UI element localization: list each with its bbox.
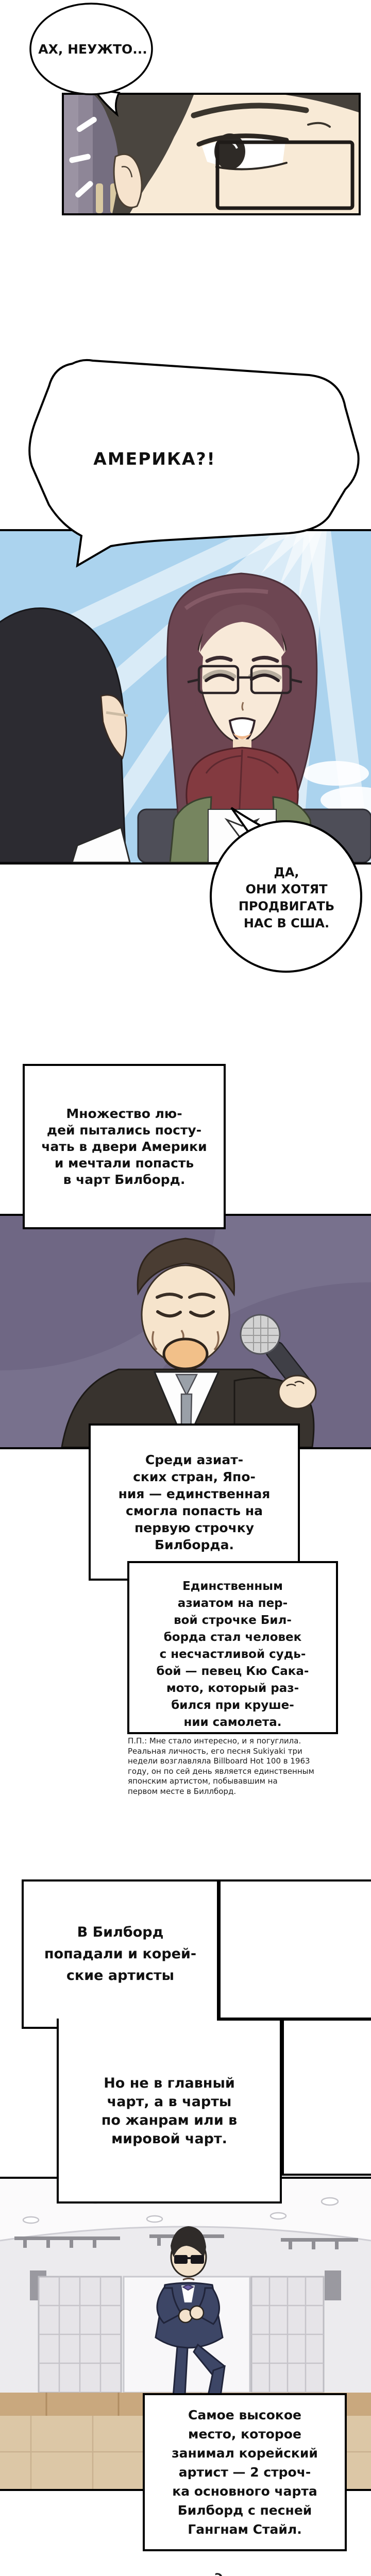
open-mouth <box>164 1339 207 1369</box>
caption-box-sakamoto: Единственным азиатом на пер- вой строчке… <box>127 1561 338 1734</box>
caption-box4-text: В Билборд попадали и корей- ские артисты <box>44 1922 196 1987</box>
bubble-da-text: ДА, ОНИ ХОТЯТ ПРОДВИГАТЬ НАС В США. <box>225 854 348 942</box>
translator-footnote: П.П.: Мне стало интересно, и я погуглила… <box>128 1736 324 1797</box>
caption-box-japan: Среди азиат- ских стран, Япо- ния — един… <box>89 1423 300 1581</box>
caption-box6-text: Самое высокое место, которое занимал кор… <box>172 2405 318 2539</box>
webtoon-page: АХ, НЕУЖТО... АМЕРИКА?! <box>0 0 371 2576</box>
aside-text: Это, безусловно, большое достижение, но.… <box>180 2566 358 2576</box>
caption-box-highest-place: Самое высокое место, которое занимал кор… <box>143 2393 347 2551</box>
box-junction-patch <box>129 1563 300 1579</box>
cloud <box>303 761 369 786</box>
caption-box-many-people: Множество лю- дей пытались посту- чать в… <box>23 1064 226 1229</box>
caption-box3-text: Единственным азиатом на пер- вой строчке… <box>157 1565 309 1731</box>
caption-box2-text: Среди азиат- ских стран, Япо- ния — един… <box>119 1451 271 1553</box>
caption-box-korean-artists: В Билборд попадали и корей- ские артисты <box>22 1879 219 2029</box>
caption-box5-text: Но не в главный чарт, а в чарты по жанра… <box>102 2074 237 2148</box>
caption-box-side-right <box>218 1879 371 2020</box>
panel-kyu-sakamoto <box>0 1214 371 1449</box>
hand <box>279 1376 316 1409</box>
bubble-ah-text: АХ, НЕУЖТО... <box>33 31 152 67</box>
caption-box-not-main-chart: Но не в главный чарт, а в чарты по жанра… <box>57 2019 282 2204</box>
caption-box1-text: Множество лю- дей пытались посту- чать в… <box>41 1106 207 1188</box>
bubble-america-text: АМЕРИКА?! <box>62 435 247 482</box>
box-junction-patch2 <box>59 2019 217 2031</box>
caption-box-side-right2 <box>282 2019 371 2176</box>
